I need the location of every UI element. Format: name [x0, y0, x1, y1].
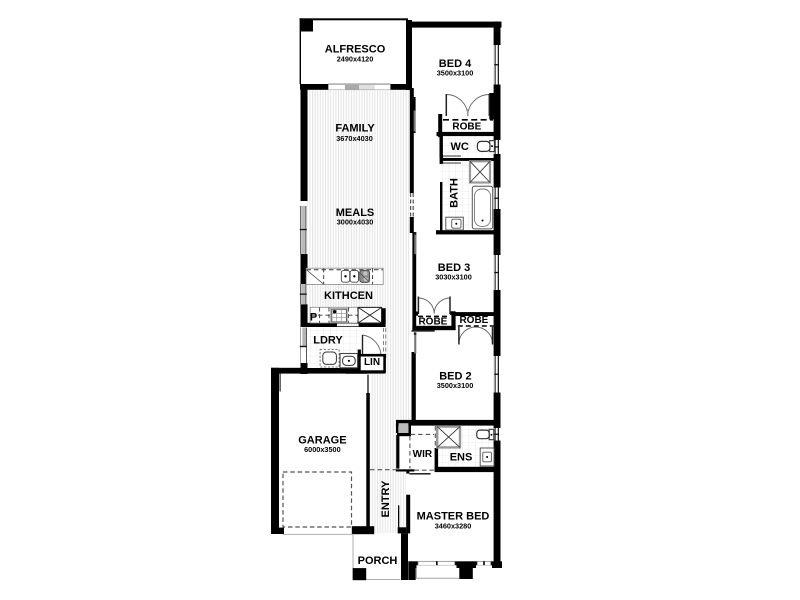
svg-text:LDRY: LDRY: [313, 334, 343, 346]
svg-text:ENS: ENS: [450, 452, 473, 464]
svg-text:BATH: BATH: [449, 178, 461, 208]
svg-text:3000x4030: 3000x4030: [337, 218, 374, 227]
svg-text:6000x3500: 6000x3500: [304, 445, 341, 454]
svg-text:ROBE: ROBE: [459, 315, 488, 326]
svg-text:2490x4120: 2490x4120: [337, 55, 374, 64]
svg-text:PORCH: PORCH: [358, 555, 398, 567]
svg-text:3030x3100: 3030x3100: [435, 273, 472, 282]
svg-text:ENTRY: ENTRY: [380, 480, 392, 518]
svg-text:3670x4030: 3670x4030: [336, 134, 373, 143]
svg-text:3500x3100: 3500x3100: [437, 381, 474, 390]
svg-text:3460x3280: 3460x3280: [435, 522, 472, 531]
svg-text:WIR: WIR: [413, 449, 433, 460]
svg-text:P: P: [310, 312, 317, 324]
svg-text:LIN: LIN: [364, 357, 380, 368]
svg-text:WC: WC: [451, 141, 469, 153]
svg-text:ROBE: ROBE: [418, 316, 447, 327]
svg-text:KITHCEN: KITHCEN: [324, 290, 373, 302]
svg-text:3500x3100: 3500x3100: [437, 69, 474, 78]
svg-text:FAMILY: FAMILY: [335, 123, 375, 135]
svg-text:ROBE: ROBE: [452, 121, 481, 132]
